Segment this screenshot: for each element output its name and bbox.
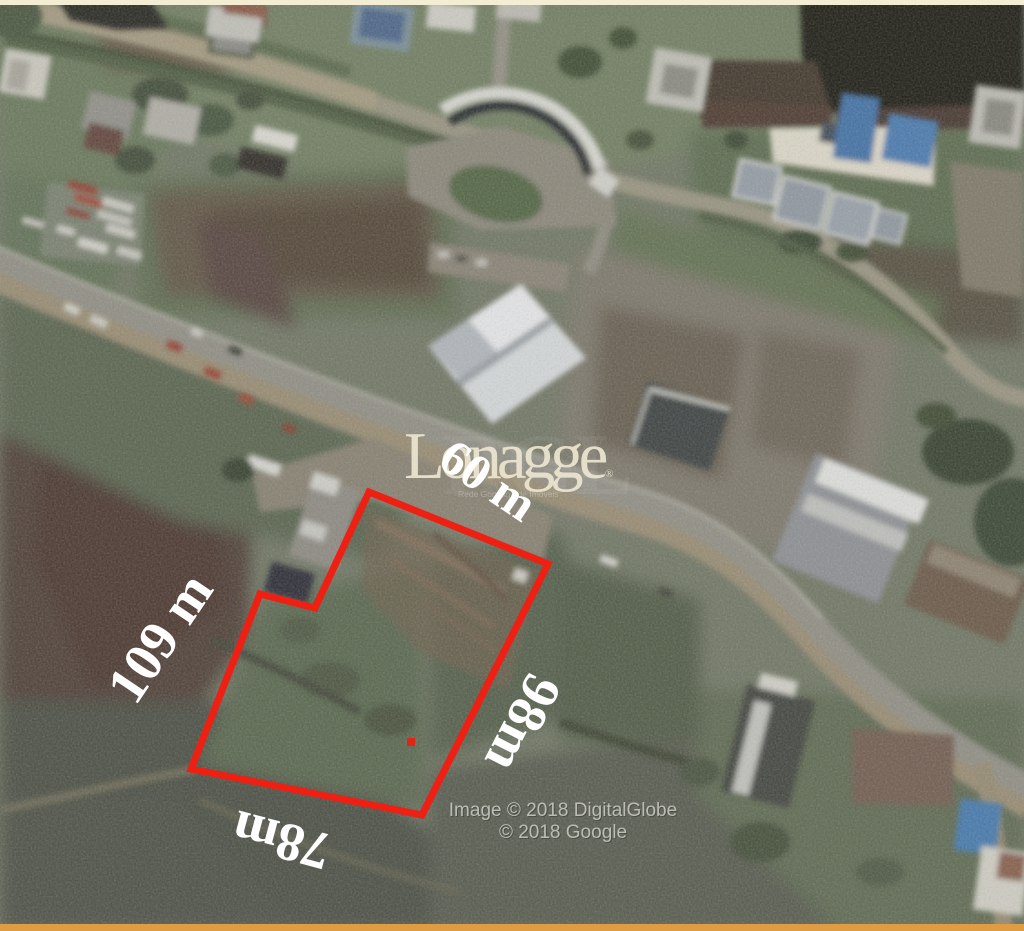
svg-text:®: ® — [605, 468, 613, 480]
svg-text:© 2018 Google: © 2018 Google — [499, 822, 627, 843]
svg-text:Image © 2018 DigitalGlobe: Image © 2018 DigitalGlobe — [449, 800, 677, 821]
